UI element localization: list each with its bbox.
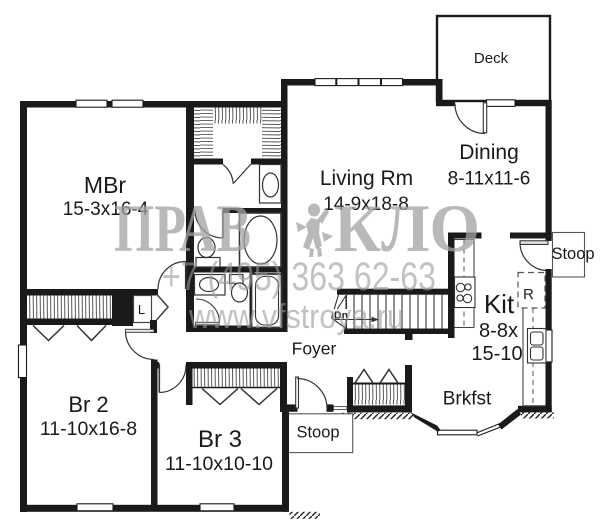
svg-text:www.vfstroya.ru: www.vfstroya.ru bbox=[188, 298, 404, 336]
svg-text:Br 2: Br 2 bbox=[68, 392, 108, 417]
svg-text:R: R bbox=[523, 286, 534, 303]
svg-text:Foyer: Foyer bbox=[292, 339, 337, 359]
svg-text:Deck: Deck bbox=[474, 50, 509, 67]
svg-text:Dining: Dining bbox=[459, 141, 519, 164]
svg-text:Stoop: Stoop bbox=[296, 424, 339, 442]
svg-text:+7 (495) 363 62-63: +7 (495) 363 62-63 bbox=[162, 255, 436, 299]
svg-text:11-10x16-8: 11-10x16-8 bbox=[40, 418, 137, 440]
svg-text:11-10x10-10: 11-10x10-10 bbox=[165, 453, 273, 475]
svg-text:Stoop: Stoop bbox=[551, 245, 594, 263]
svg-text:Brkfst: Brkfst bbox=[443, 389, 492, 410]
svg-text:Br 3: Br 3 bbox=[198, 426, 242, 453]
svg-text:15-10: 15-10 bbox=[471, 343, 522, 365]
svg-text:L: L bbox=[138, 302, 145, 317]
svg-text:8-8x: 8-8x bbox=[479, 320, 518, 342]
svg-text:8-11x11-6: 8-11x11-6 bbox=[448, 169, 531, 190]
svg-text:Living Rm: Living Rm bbox=[320, 167, 413, 190]
svg-text:Kit: Kit bbox=[484, 289, 515, 319]
